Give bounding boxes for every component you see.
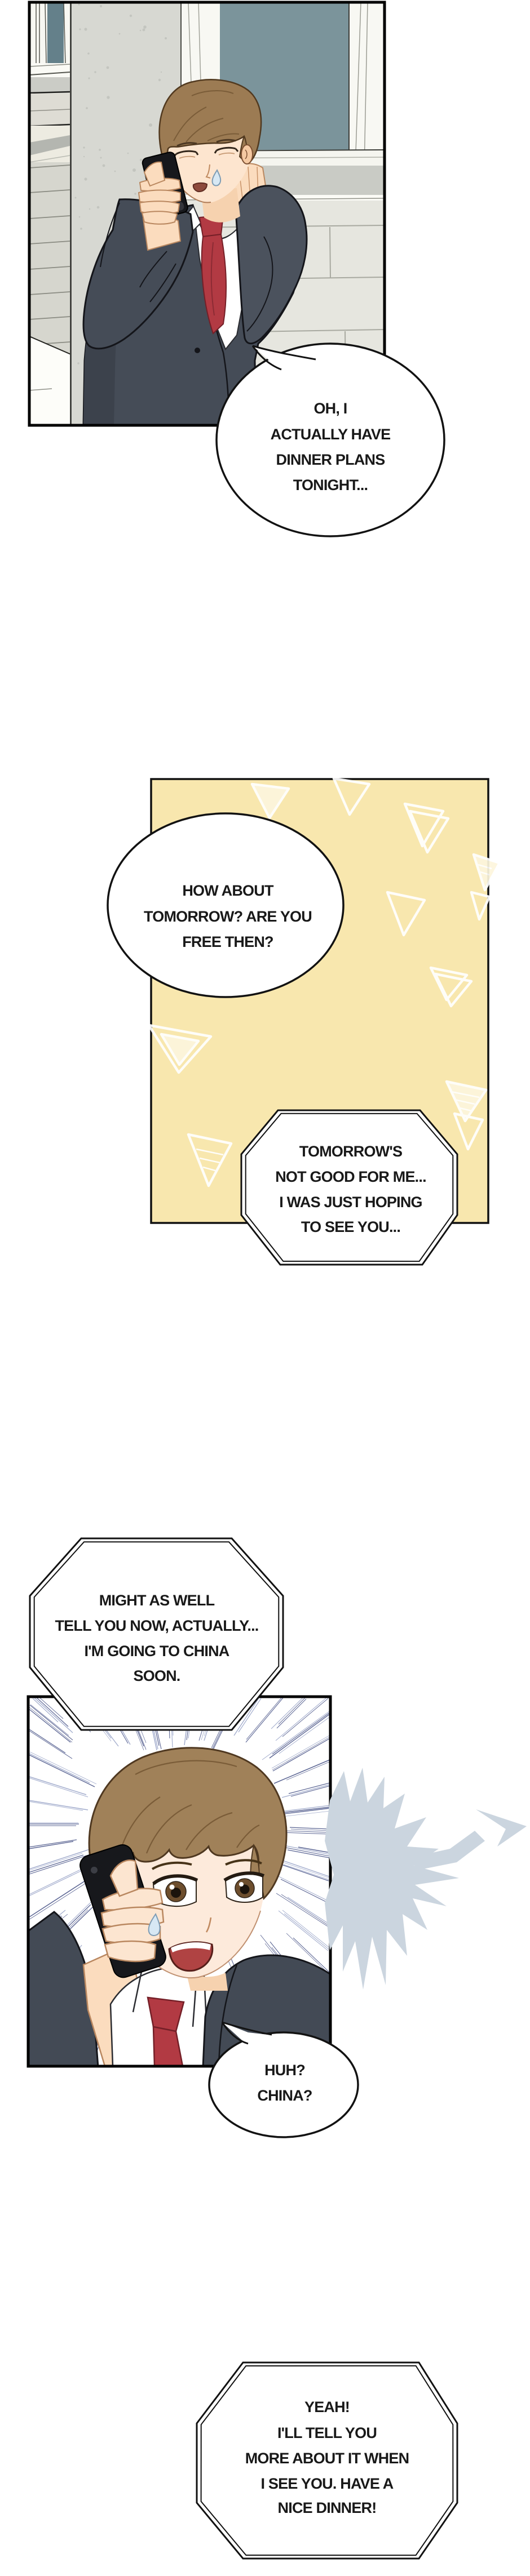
svg-text:TOMORROW'S: TOMORROW'S [299, 1143, 402, 1160]
svg-text:I'LL TELL YOU: I'LL TELL YOU [277, 2424, 377, 2441]
svg-text:HUH?: HUH? [264, 2062, 305, 2079]
svg-text:SOON.: SOON. [133, 1667, 180, 1684]
svg-text:TELL YOU NOW, ACTUALLY...: TELL YOU NOW, ACTUALLY... [55, 1617, 258, 1634]
svg-text:HOW ABOUT: HOW ABOUT [182, 882, 274, 899]
svg-text:I WAS JUST HOPING: I WAS JUST HOPING [279, 1194, 422, 1211]
svg-text:DINNER PLANS: DINNER PLANS [276, 451, 385, 468]
svg-text:CHINA?: CHINA? [257, 2087, 312, 2104]
svg-text:OH, I: OH, I [313, 400, 347, 417]
svg-text:I'M GOING TO CHINA: I'M GOING TO CHINA [84, 1643, 229, 1660]
svg-text:FREE THEN?: FREE THEN? [182, 933, 273, 950]
svg-text:TONIGHT...: TONIGHT... [293, 477, 368, 493]
svg-text:TOMORROW? ARE YOU: TOMORROW? ARE YOU [144, 908, 312, 925]
svg-text:YEAH!: YEAH! [304, 2399, 350, 2415]
svg-text:I SEE YOU. HAVE A: I SEE YOU. HAVE A [261, 2475, 394, 2492]
svg-text:MIGHT AS WELL: MIGHT AS WELL [99, 1592, 215, 1609]
svg-text:MORE ABOUT IT WHEN: MORE ABOUT IT WHEN [245, 2450, 409, 2467]
svg-text:ACTUALLY HAVE: ACTUALLY HAVE [271, 426, 391, 443]
svg-text:NOT GOOD FOR ME...: NOT GOOD FOR ME... [275, 1168, 426, 1185]
svg-text:TO SEE YOU...: TO SEE YOU... [301, 1218, 400, 1235]
svg-text:NICE DINNER!: NICE DINNER! [278, 2499, 377, 2516]
